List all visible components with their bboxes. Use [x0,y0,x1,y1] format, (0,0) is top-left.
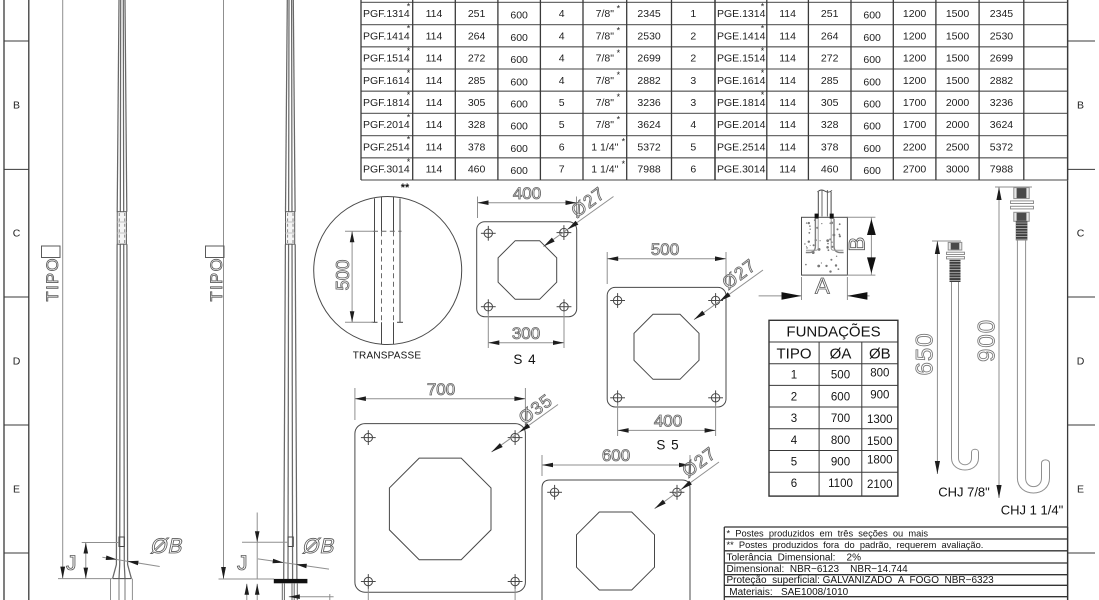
svg-text:600: 600 [863,121,881,133]
svg-text:2699: 2699 [990,53,1014,65]
svg-text:** Postes produzidos fora: ** Postes produzidos fora do padrão, req… [727,540,984,550]
svg-text:3624: 3624 [990,119,1014,131]
svg-text:114: 114 [779,97,796,109]
svg-text:5: 5 [559,119,565,131]
svg-text:1500: 1500 [867,436,893,448]
svg-text:114: 114 [426,97,443,109]
svg-text:650: 650 [912,332,939,375]
svg-text:Tolerância Dimensional: 2%: Tolerância Dimensional: 2% [727,552,862,563]
svg-text:*: * [761,68,765,78]
svg-text:1500: 1500 [946,8,970,20]
svg-text:*: * [407,112,411,122]
svg-text:* Postes produzidos em trê: * Postes produzidos em três seções ou ma… [727,529,929,539]
svg-text:600: 600 [863,10,881,22]
svg-text:7/8": 7/8" [596,8,615,20]
svg-text:114: 114 [426,141,443,153]
svg-text:ØB: ØB [869,346,891,363]
svg-text:1200: 1200 [903,75,927,87]
svg-text:5: 5 [791,457,797,469]
svg-text:305: 305 [821,97,839,109]
svg-text:*: * [407,46,411,56]
svg-text:600: 600 [510,165,528,177]
svg-text:114: 114 [779,75,796,87]
svg-text:328: 328 [468,119,486,131]
svg-text:PGF.1814: PGF.1814 [363,97,410,109]
svg-text:*: * [617,92,621,102]
svg-text:4: 4 [690,119,696,131]
svg-text:3236: 3236 [637,97,661,109]
svg-text:114: 114 [779,119,796,131]
svg-text:272: 272 [468,53,486,65]
svg-text:600: 600 [510,10,528,22]
svg-text:600: 600 [602,446,630,465]
svg-text:2200: 2200 [903,141,927,153]
svg-text:5372: 5372 [637,141,661,153]
svg-text:CHJ 7/8": CHJ 7/8" [938,485,990,500]
svg-text:D: D [1077,356,1085,368]
svg-text:378: 378 [468,141,486,153]
svg-text:285: 285 [468,75,486,87]
svg-text:5: 5 [690,141,696,153]
svg-text:D: D [13,356,21,368]
svg-text:264: 264 [821,30,839,42]
svg-text:Materiais: SAE1008/1010: Materiais: SAE1008/1010 [727,587,849,598]
svg-text:285: 285 [821,75,839,87]
svg-text:PGE.1614: PGE.1614 [717,75,766,87]
svg-text:114: 114 [779,8,796,20]
svg-text:*: * [761,46,765,56]
svg-text:4: 4 [559,30,565,42]
svg-text:ØA: ØA [830,346,852,363]
svg-text:500: 500 [332,260,353,291]
svg-text:2882: 2882 [990,75,1014,87]
svg-text:600: 600 [863,76,881,88]
svg-text:3: 3 [690,75,696,87]
svg-text:Dimensional: NBR−6123 NBR−: Dimensional: NBR−6123 NBR−14.744 [727,564,909,575]
svg-text:1200: 1200 [903,30,927,42]
svg-text:328: 328 [821,119,839,131]
svg-text:TIPO: TIPO [776,346,811,363]
svg-text:TIPO: TIPO [44,257,62,302]
svg-text:114: 114 [426,30,443,42]
svg-text:*: * [617,114,621,124]
svg-text:600: 600 [510,99,528,111]
svg-text:1800: 1800 [867,455,893,467]
svg-text:2000: 2000 [946,97,970,109]
svg-text:E: E [13,484,20,496]
svg-text:600: 600 [863,143,881,155]
svg-text:*: * [617,70,621,80]
svg-text:251: 251 [468,8,486,20]
svg-text:2530: 2530 [990,30,1014,42]
svg-text:4: 4 [791,435,798,447]
svg-text:800: 800 [870,368,889,380]
svg-text:7/8": 7/8" [596,75,615,87]
svg-text:2699: 2699 [637,53,661,65]
svg-text:114: 114 [426,119,443,131]
svg-text:PGE.2014: PGE.2014 [717,119,766,131]
svg-text:PGF.2014: PGF.2014 [363,119,410,131]
svg-text:4: 4 [559,8,565,20]
svg-text:6: 6 [559,141,565,153]
svg-text:600: 600 [863,165,881,177]
svg-text:114: 114 [426,164,443,176]
svg-text:PGE.1314: PGE.1314 [717,8,766,20]
svg-text:2882: 2882 [637,75,661,87]
svg-text:ØB: ØB [149,535,186,558]
svg-text:Proteção superficial: GALVANI: Proteção superficial: GALVANIZADO A FOGO… [727,575,995,586]
svg-text:7/8": 7/8" [596,53,615,65]
svg-text:1 1/4": 1 1/4" [591,141,618,153]
svg-text:*: * [407,157,411,167]
svg-text:*: * [622,137,626,147]
svg-text:PGF.1614: PGF.1614 [363,75,410,87]
svg-text:PGE.1414: PGE.1414 [717,30,766,42]
svg-text:C: C [13,228,21,240]
svg-text:700: 700 [427,380,455,399]
svg-text:378: 378 [821,141,839,153]
svg-text:*: * [407,135,411,145]
svg-text:1200: 1200 [903,8,927,20]
svg-text:J: J [66,552,77,575]
svg-text:600: 600 [510,143,528,155]
svg-text:*: * [407,68,411,78]
svg-text:114: 114 [779,164,796,176]
svg-text:PGF.3014: PGF.3014 [363,164,410,176]
svg-text:700: 700 [831,413,850,425]
svg-text:600: 600 [831,391,850,403]
svg-text:900: 900 [870,389,889,401]
svg-text:ØB: ØB [301,535,338,558]
svg-text:114: 114 [426,53,443,65]
svg-text:FUNDAÇÕES: FUNDAÇÕES [786,324,880,341]
svg-text:2700: 2700 [903,164,927,176]
svg-text:TIPO: TIPO [208,257,226,302]
svg-text:PGE.2514: PGE.2514 [717,141,766,153]
svg-text:7: 7 [559,164,565,176]
svg-text:PGE.1514: PGE.1514 [717,53,766,65]
svg-text:1700: 1700 [903,119,927,131]
svg-text:B: B [13,100,20,112]
svg-text:1500: 1500 [946,75,970,87]
svg-text:CHJ 1 1/4": CHJ 1 1/4" [1001,503,1064,518]
svg-text:PGF.1514: PGF.1514 [363,53,410,65]
svg-text:C: C [1077,228,1085,240]
svg-text:1 1/4": 1 1/4" [591,164,618,176]
svg-text:400: 400 [654,412,682,431]
svg-text:3624: 3624 [637,119,661,131]
svg-text:PGF.2514: PGF.2514 [363,141,410,153]
svg-text:114: 114 [426,75,443,87]
svg-text:2000: 2000 [946,119,970,131]
svg-text:500: 500 [831,370,850,382]
svg-text:J: J [237,552,248,575]
svg-text:460: 460 [468,164,486,176]
svg-text:305: 305 [468,97,486,109]
svg-text:*: * [617,3,621,13]
svg-text:2: 2 [791,391,797,403]
svg-text:S 4: S 4 [513,352,536,367]
svg-text:1: 1 [791,370,797,382]
svg-text:1200: 1200 [903,53,927,65]
svg-text:600: 600 [863,54,881,66]
svg-text:PGE.3014: PGE.3014 [717,164,766,176]
svg-text:PGE.1814: PGE.1814 [717,97,766,109]
svg-text:*: * [761,24,765,34]
svg-text:600: 600 [510,32,528,44]
svg-text:TRANSPASSE: TRANSPASSE [353,351,422,362]
svg-text:1700: 1700 [903,97,927,109]
svg-text:460: 460 [821,164,839,176]
svg-text:264: 264 [468,30,486,42]
svg-text:500: 500 [651,240,679,259]
svg-text:600: 600 [863,99,881,111]
svg-text:S 5: S 5 [656,438,679,453]
svg-text:4: 4 [559,75,565,87]
svg-text:3: 3 [690,97,696,109]
svg-text:600: 600 [863,32,881,44]
svg-text:3: 3 [791,413,797,425]
svg-text:PGF.1414: PGF.1414 [363,30,410,42]
svg-text:*: * [622,159,626,169]
svg-text:2345: 2345 [990,8,1014,20]
svg-text:272: 272 [821,53,839,65]
svg-text:E: E [1077,484,1084,496]
svg-text:2: 2 [690,53,696,65]
svg-text:B: B [1077,100,1084,112]
svg-text:*: * [407,90,411,100]
svg-text:B: B [845,237,870,252]
svg-text:900: 900 [831,457,850,469]
svg-text:*: * [407,24,411,34]
svg-text:2345: 2345 [637,8,661,20]
svg-text:251: 251 [821,8,839,20]
svg-text:7988: 7988 [990,164,1014,176]
svg-text:3000: 3000 [946,164,970,176]
svg-text:1: 1 [690,8,696,20]
svg-text:4: 4 [559,53,565,65]
svg-text:600: 600 [510,76,528,88]
svg-text:*: * [617,48,621,58]
svg-text:2530: 2530 [637,30,661,42]
svg-text:7/8": 7/8" [596,119,615,131]
svg-text:7/8": 7/8" [596,30,615,42]
svg-text:6: 6 [690,164,696,176]
svg-text:6: 6 [791,478,797,490]
svg-text:7/8": 7/8" [596,97,615,109]
svg-text:400: 400 [513,184,541,203]
svg-text:114: 114 [779,30,796,42]
svg-text:PGF.1314: PGF.1314 [363,8,410,20]
svg-text:900: 900 [974,319,1001,362]
svg-text:**: ** [401,182,410,194]
svg-text:*: * [761,90,765,100]
svg-text:2: 2 [690,30,696,42]
svg-text:5372: 5372 [990,141,1014,153]
svg-text:114: 114 [779,141,796,153]
svg-text:2100: 2100 [867,479,893,491]
svg-text:7988: 7988 [637,164,661,176]
svg-text:114: 114 [426,8,443,20]
svg-text:1500: 1500 [946,30,970,42]
svg-text:*: * [617,26,621,36]
svg-text:2500: 2500 [946,141,970,153]
svg-text:1500: 1500 [946,53,970,65]
svg-text:*: * [761,1,765,11]
svg-text:300: 300 [512,324,540,343]
svg-text:114: 114 [779,53,796,65]
svg-text:3236: 3236 [990,97,1014,109]
svg-text:600: 600 [510,121,528,133]
svg-text:*: * [407,1,411,11]
svg-text:600: 600 [510,54,528,66]
svg-text:800: 800 [831,435,850,447]
svg-text:A: A [815,274,830,299]
svg-text:5: 5 [559,97,565,109]
svg-text:1300: 1300 [867,414,893,426]
svg-text:1100: 1100 [828,478,853,490]
